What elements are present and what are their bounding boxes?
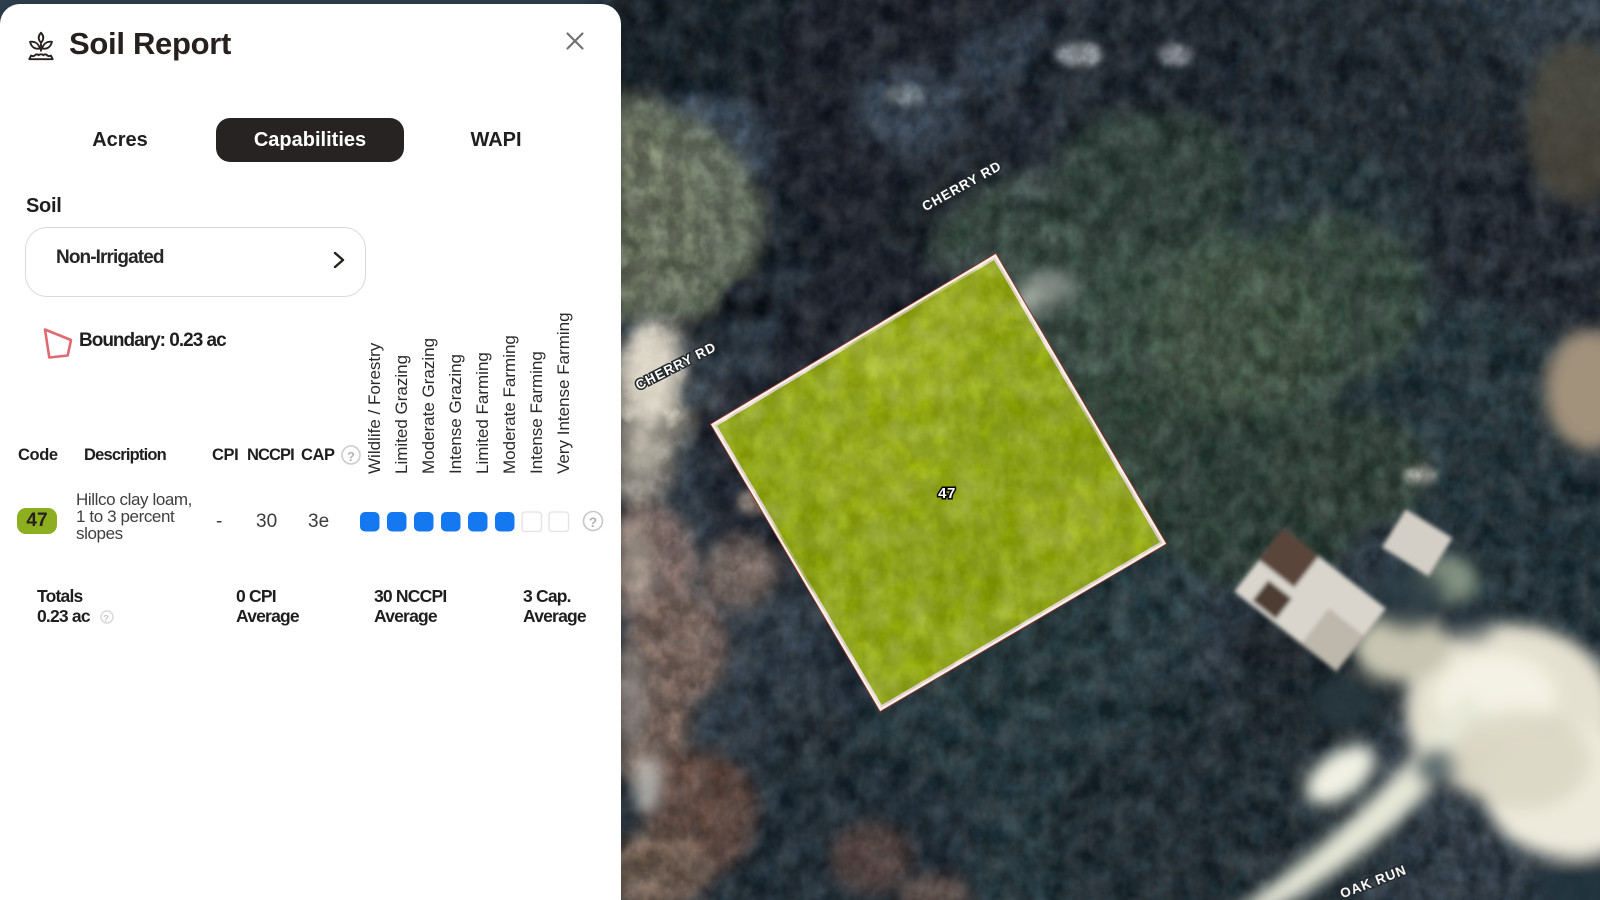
svg-text:Moderate Grazing: Moderate Grazing <box>419 338 438 474</box>
svg-text:Intense Farming: Intense Farming <box>527 351 546 474</box>
svg-text:Limited Grazing: Limited Grazing <box>392 355 411 474</box>
svg-text:?: ? <box>347 449 355 464</box>
svg-text:Limited Farming: Limited Farming <box>473 352 492 474</box>
svg-text:Very Intense Farming: Very Intense Farming <box>554 312 573 474</box>
svg-text:?: ? <box>589 515 597 530</box>
svg-text:Wildlife / Forestry: Wildlife / Forestry <box>365 342 384 474</box>
svg-text:?: ? <box>103 614 109 625</box>
svg-text:Intense Grazing: Intense Grazing <box>446 354 465 474</box>
svg-text:47: 47 <box>938 485 956 502</box>
svg-text:Moderate Farming: Moderate Farming <box>500 335 519 474</box>
